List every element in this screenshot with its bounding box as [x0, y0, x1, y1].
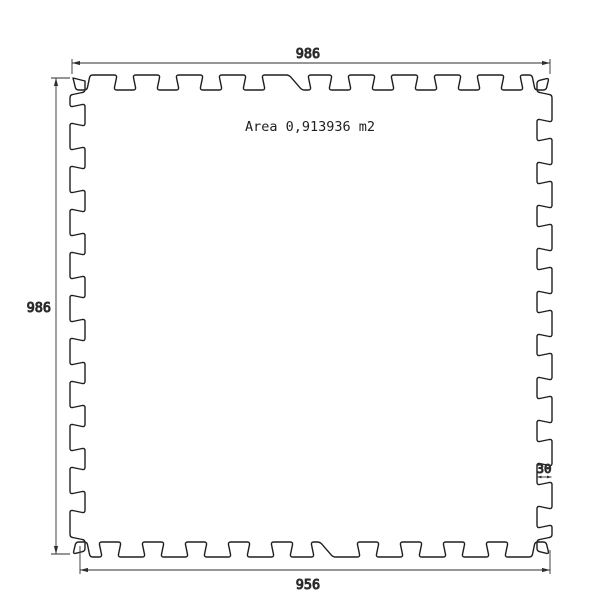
arrowhead-right [542, 61, 550, 65]
dimension-top: 986 [72, 46, 550, 74]
dimension-label-bottom: 956 [296, 577, 320, 593]
arrowhead-top [54, 78, 58, 86]
tile-drawing-canvas: 986 986 956 30 Area 0,913936 m2 [0, 0, 600, 600]
area-label: Area 0,913936 m2 [245, 119, 375, 135]
dimension-label-left: 986 [27, 300, 51, 316]
arrowhead-right [542, 568, 550, 572]
arrowhead-left [80, 568, 88, 572]
arrowhead-bottom [54, 546, 58, 554]
dimension-label-tab: 30 [536, 461, 551, 476]
arrowhead-left [72, 61, 80, 65]
dimension-label-top: 986 [296, 46, 320, 62]
tile-outline [70, 75, 552, 557]
dimension-left: 986 [27, 78, 70, 554]
arrowhead-right [547, 476, 552, 479]
dimension-tab-depth: 30 [536, 461, 551, 478]
